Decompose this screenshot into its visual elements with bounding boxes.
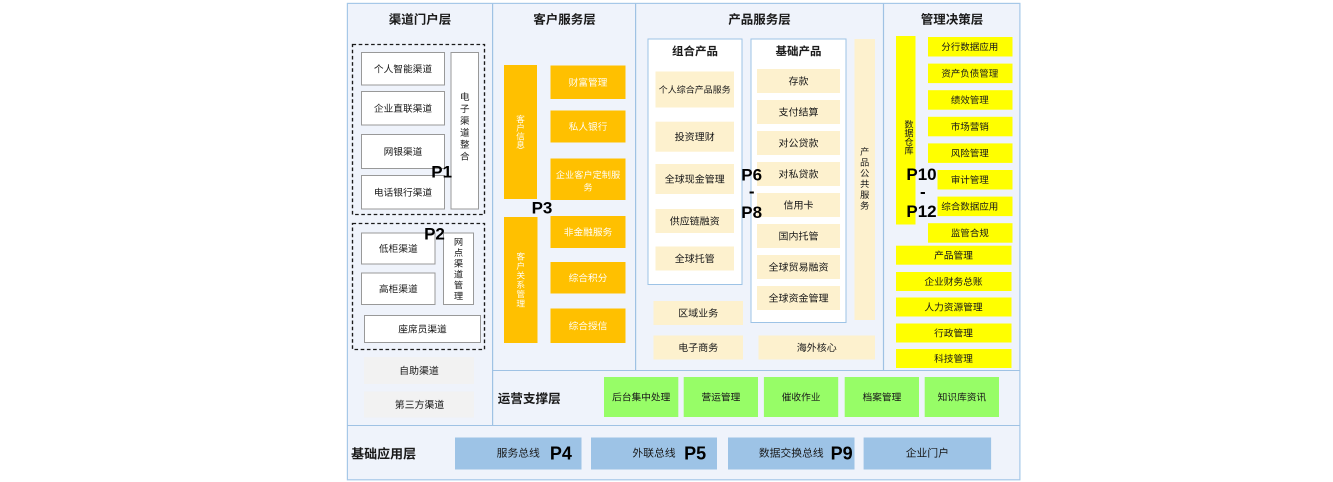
svg-text:P5: P5 bbox=[684, 444, 706, 464]
svg-text:-: - bbox=[920, 183, 926, 202]
svg-text:P3: P3 bbox=[532, 199, 553, 218]
svg-text:P9: P9 bbox=[831, 444, 853, 464]
svg-text:P8: P8 bbox=[741, 203, 762, 222]
svg-text:-: - bbox=[749, 182, 755, 201]
svg-text:P4: P4 bbox=[550, 444, 572, 464]
svg-text:P2: P2 bbox=[424, 225, 445, 244]
svg-text:P1: P1 bbox=[431, 162, 452, 181]
svg-text:P12: P12 bbox=[906, 202, 936, 221]
svg-text:P10: P10 bbox=[906, 165, 936, 184]
